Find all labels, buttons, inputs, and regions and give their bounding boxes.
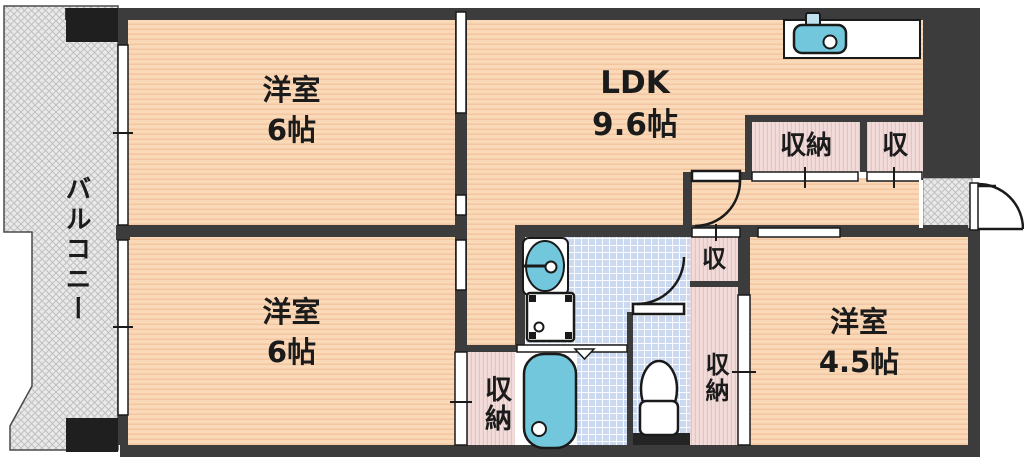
pillar-bottom xyxy=(66,418,118,452)
wall-between-left-rooms xyxy=(120,225,467,237)
slider-mid-1 xyxy=(456,12,466,113)
pillar-top xyxy=(66,8,118,42)
closet-mid-small-label: 収 xyxy=(690,244,738,274)
closet-bottom-left-label: 収納 xyxy=(470,362,512,446)
floor-plan: バルコニー 洋室 6帖 LDK 9.6帖 洋室 6帖 洋室 4.5帖 収納 収 … xyxy=(0,0,1024,461)
room-name: 洋室 xyxy=(750,302,968,342)
wall-left-c xyxy=(118,415,128,445)
wall-right-mass xyxy=(923,8,980,178)
washing-machine-pan-icon xyxy=(527,293,574,341)
toilet-icon xyxy=(640,361,678,435)
room-size: 6帖 xyxy=(128,332,455,372)
hallway-floor xyxy=(692,178,923,228)
wall-top xyxy=(65,8,923,20)
ldk-label: LDK 9.6帖 xyxy=(500,62,770,146)
slider-mid-2 xyxy=(456,195,466,215)
wall-closet-divider xyxy=(860,115,867,172)
slider-mid-3 xyxy=(456,240,466,290)
entrance-tile xyxy=(923,178,972,230)
wall-left-a xyxy=(118,20,128,45)
wall-closet-right-post xyxy=(738,232,750,295)
balcony-label: バルコニー xyxy=(58,142,92,357)
room-size: 6帖 xyxy=(128,110,455,150)
room-name: LDK xyxy=(500,62,770,104)
kitchen-sink-icon xyxy=(784,13,920,58)
room-size: 4.5帖 xyxy=(750,342,968,382)
room-top-left-label: 洋室 6帖 xyxy=(128,70,455,150)
wall-closet-top xyxy=(745,115,923,122)
front-door-frame xyxy=(970,183,978,230)
bath-door-band xyxy=(517,345,627,352)
room-name: 洋室 xyxy=(128,292,455,332)
wall-mid-closet-divider xyxy=(690,281,738,287)
wall-right-lower xyxy=(968,228,980,457)
window-top-left xyxy=(118,45,128,225)
closet-right-tall-label: 収納 xyxy=(698,338,730,418)
slider-room-right xyxy=(758,228,840,237)
slider-bottom-closet xyxy=(455,352,467,445)
wash-basin-icon xyxy=(523,238,568,295)
slider-closet-right-tall xyxy=(738,295,750,445)
front-door xyxy=(978,184,1023,229)
room-bottom-left-label: 洋室 6帖 xyxy=(128,292,455,372)
wall-ldk-bottom xyxy=(515,225,692,237)
wall-toilet-divider xyxy=(627,312,633,445)
wall-above-bottom-closet xyxy=(455,345,517,352)
room-name: 洋室 xyxy=(128,70,455,110)
closet-top-small-label: 収 xyxy=(867,130,923,163)
room-right-label: 洋室 4.5帖 xyxy=(750,302,968,382)
bathtub-icon xyxy=(524,354,576,448)
hall-entry-strip xyxy=(919,180,923,228)
closet-top-main-label: 収納 xyxy=(752,130,860,163)
room-size: 9.6帖 xyxy=(500,104,770,146)
